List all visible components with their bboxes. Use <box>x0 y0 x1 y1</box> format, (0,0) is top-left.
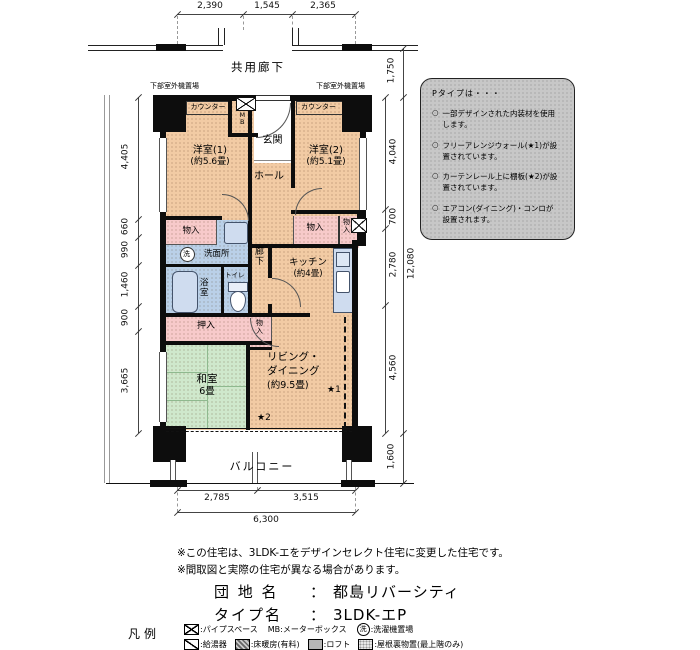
monoire-small-label: 物入 <box>256 320 263 336</box>
yoshitsu1-label: 洋室(1) <box>172 146 248 156</box>
type-name-value: 3LDK-エP <box>333 604 407 625</box>
legend-washer-text: :洗濯機置場 <box>371 624 414 635</box>
legend-floor-heating: :床暖房(有料) <box>235 639 300 650</box>
ptype-note-item: ○ 一部デザインされた内装材を使用します。 <box>432 108 566 131</box>
dim-top-1: 2,390 <box>180 2 240 11</box>
kitchen-label: キッチン <box>280 258 336 268</box>
legend-floor-heating-text: :床暖房(有料) <box>251 639 300 650</box>
legend-mb: MB:メーターボックス <box>268 624 347 635</box>
attic-storage-icon <box>358 639 373 650</box>
pipe-space-icon <box>184 624 199 635</box>
toilet-label: トイレ <box>225 272 245 279</box>
bath-toilet-divider <box>221 267 224 316</box>
entrance-opening <box>256 95 290 101</box>
hall-label: ホール <box>246 172 292 182</box>
yoshitsu1-size: (約5.6畳) <box>172 158 248 167</box>
outdoor-unit-left-label: 下部室外機置場 <box>150 83 199 90</box>
footer-note-2: ※間取図と実際の住宅が異なる場合があります。 <box>177 565 405 576</box>
legend-attic: :屋根裏物置(最上階のみ) <box>358 639 463 650</box>
monoire-right2-label: 物入 <box>343 219 350 235</box>
dim-right-total: 12,080 <box>408 242 417 286</box>
balcony-boundary-dash <box>166 431 352 432</box>
corridor-corner <box>292 28 299 45</box>
legend-loft: :ロフト <box>308 639 351 650</box>
washer-place-char: 洗 <box>183 251 190 258</box>
washing-machine <box>224 222 248 244</box>
legend-pipe-space-text: :パイプスペース <box>200 624 258 635</box>
legend-heater: :給湯器 <box>184 639 227 650</box>
legend-pipe-space: :パイプスペース <box>184 624 258 635</box>
dim-line-bottom-1 <box>177 490 355 491</box>
corridor-wall-block <box>342 44 372 51</box>
loft-icon <box>308 639 323 650</box>
star2-label: ★2 <box>257 414 271 423</box>
kitchen-sink <box>336 271 350 293</box>
kitchen-size: (約4畳) <box>280 270 336 279</box>
ptype-note-item: ○ エアコン(ダイニング)・コンロが設置されます。 <box>432 203 566 226</box>
yoshitsu2-label: 洋室(2) <box>294 146 358 156</box>
dim-top-3: 2,365 <box>293 2 353 11</box>
living-size: (約9.5畳) <box>267 381 309 391</box>
window-yoshitsu2 <box>359 138 367 210</box>
legend-rows: :パイプスペース MB:メーターボックス 洗 :洗濯機置場 :給湯器 :床暖房(… <box>184 623 463 650</box>
washer-circle-icon: 洗 <box>357 623 370 636</box>
ptype-note-item-text: 一部デザインされた内装材を使用します。 <box>443 108 561 131</box>
balcony-edge-block-left <box>150 480 187 487</box>
legend-row-2: :給湯器 :床暖房(有料) :ロフト :屋根裏物置(最上階のみ) <box>184 639 463 650</box>
dim-ext-line <box>243 16 244 30</box>
floor-heating-icon <box>235 639 250 650</box>
bullet-circle-icon: ○ <box>432 171 439 194</box>
dim-bottom-total: 6,300 <box>236 516 296 525</box>
genkan-step-line <box>254 160 291 161</box>
yoshitsu1-south-wall <box>160 216 222 220</box>
ptype-note-box: Pタイプは・・・ ○ 一部デザインされた内装材を使用します。 ○ フリーアレンジ… <box>420 78 575 240</box>
type-name-row: タイプ名 ： 3LDK-エP <box>214 604 407 625</box>
corridor-corner <box>218 28 225 45</box>
ptype-note-item-text: フリーアレンジウォール(★1)が設置されています。 <box>443 140 561 163</box>
water-heater-icon <box>184 639 199 650</box>
dim-right-3: 2,780 <box>390 243 399 287</box>
living-label-1: リビング・ <box>267 352 320 363</box>
dim-right-4: 4,560 <box>390 346 399 390</box>
dim-line-bottom-2 <box>177 512 355 513</box>
ptype-note-item-text: エアコン(ダイニング)・コンロが設置されます。 <box>443 203 561 226</box>
balcony-label: バルコニー <box>222 461 302 472</box>
genkan-label: 玄関 <box>254 136 291 146</box>
dim-right-1: 4,040 <box>390 130 399 174</box>
senmenjo-label: 洗面所 <box>204 250 230 259</box>
type-name-colon: ： <box>310 604 325 625</box>
monoire-left-label: 物入 <box>168 227 214 236</box>
dim-line-right-inner <box>385 97 386 433</box>
dim-tick <box>352 509 359 516</box>
site-boundary-left <box>104 95 110 483</box>
danchi-name-row: 団 地 名 ： 都島リバーシティ <box>214 581 460 602</box>
living-label-2: ダイニング <box>267 366 320 377</box>
monoire-small-south-wall <box>248 347 272 350</box>
mb-wall-left <box>228 95 232 137</box>
legend-loft-text: :ロフト <box>324 639 351 650</box>
common-corridor-label: 共用廊下 <box>222 62 294 74</box>
dim-left-1: 4,405 <box>122 137 131 177</box>
footer-note-1: ※この住宅は、3LDK-エをデザインセレクト住宅に変更した住宅です。 <box>177 548 509 559</box>
legend-heater-text: :給湯器 <box>200 639 227 650</box>
dim-right-top: 1,750 <box>388 49 397 93</box>
dim-tick <box>135 430 142 437</box>
mb-label: MB <box>239 112 246 127</box>
bullet-circle-icon: ○ <box>432 140 439 163</box>
outdoor-unit-right-label: 下部室外機置場 <box>316 83 365 90</box>
oshiire-label: 押入 <box>180 322 232 331</box>
star1-label: ★1 <box>327 386 341 395</box>
danchi-name-colon: ： <box>310 581 325 602</box>
pipe-space-icon <box>236 97 256 111</box>
pipe-space-icon <box>351 218 367 233</box>
legend-washer: 洗 :洗濯機置場 <box>357 623 414 636</box>
free-arrange-wall-dashed <box>344 317 346 428</box>
oshiire-north-wall <box>160 313 272 317</box>
yokushitsu-label: 浴室 <box>200 279 209 298</box>
dim-left-6: 3,665 <box>122 361 131 401</box>
danchi-name-value: 都島リバーシティ <box>333 581 460 602</box>
dim-line-top <box>177 14 355 15</box>
ptype-note-item-text: カーテンレール上に棚板(★2)が設置されています。 <box>443 171 561 194</box>
kitchen-stove <box>336 252 350 267</box>
dim-bottom-2: 3,515 <box>276 494 336 503</box>
dim-ext-line <box>355 16 356 44</box>
legend-attic-text: :屋根裏物置(最上階のみ) <box>374 639 463 650</box>
corridor-wall-block <box>156 44 186 51</box>
legend-title: 凡例 <box>128 628 160 640</box>
window-yoshitsu1 <box>159 138 167 212</box>
legend-row-1: :パイプスペース MB:メーターボックス 洗 :洗濯機置場 <box>184 623 463 636</box>
tatami-line <box>166 400 207 401</box>
dim-bottom-1: 2,785 <box>187 494 247 503</box>
window-washitsu <box>159 352 167 422</box>
ptype-note-item: ○ カーテンレール上に棚板(★2)が設置されています。 <box>432 171 566 194</box>
washitsu-living-wall <box>246 345 250 430</box>
dim-ext-line <box>177 16 178 44</box>
bullet-circle-icon: ○ <box>432 108 439 131</box>
legend-mb-text: MB:メーターボックス <box>268 624 347 635</box>
counter-left-label: カウンター <box>186 104 230 111</box>
floorplan-page: { "plan": { "kyoyo_roka": "共用廊下", "outdo… <box>0 0 700 650</box>
type-name-label: タイプ名 <box>214 604 302 625</box>
roka-label: 廊下 <box>255 247 264 267</box>
corner-block-tl <box>153 95 186 132</box>
dim-right-2: 700 <box>390 195 399 239</box>
bullet-circle-icon: ○ <box>432 203 439 226</box>
ptype-note-item: ○ フリーアレンジウォール(★1)が設置されています。 <box>432 140 566 163</box>
dim-left-5: 900 <box>122 298 131 338</box>
dim-line-right-outer <box>403 48 404 483</box>
balcony-boundary-solid <box>166 428 352 429</box>
washitsu-label: 和室 <box>184 374 230 385</box>
kitchen-south-stub <box>272 313 310 317</box>
washitsu-north-wall <box>160 341 272 345</box>
counter-right-label: カウンター <box>296 104 341 111</box>
ptype-note-title: Pタイプは・・・ <box>432 88 566 99</box>
dim-left-3: 990 <box>122 230 131 270</box>
corridor-east-wall-a <box>268 248 272 278</box>
danchi-name-label: 団 地 名 <box>214 581 302 602</box>
dim-right-bottom: 1,600 <box>388 435 397 479</box>
senmenjo-south-wall <box>166 264 252 267</box>
yoshitsu2-size: (約5.1畳) <box>294 158 358 167</box>
bathtub <box>172 271 198 313</box>
right-wall-lower <box>352 240 358 433</box>
monoire-right-label: 物入 <box>294 224 336 233</box>
washitsu-size: 6畳 <box>184 387 230 397</box>
corner-block-tr <box>342 95 372 132</box>
